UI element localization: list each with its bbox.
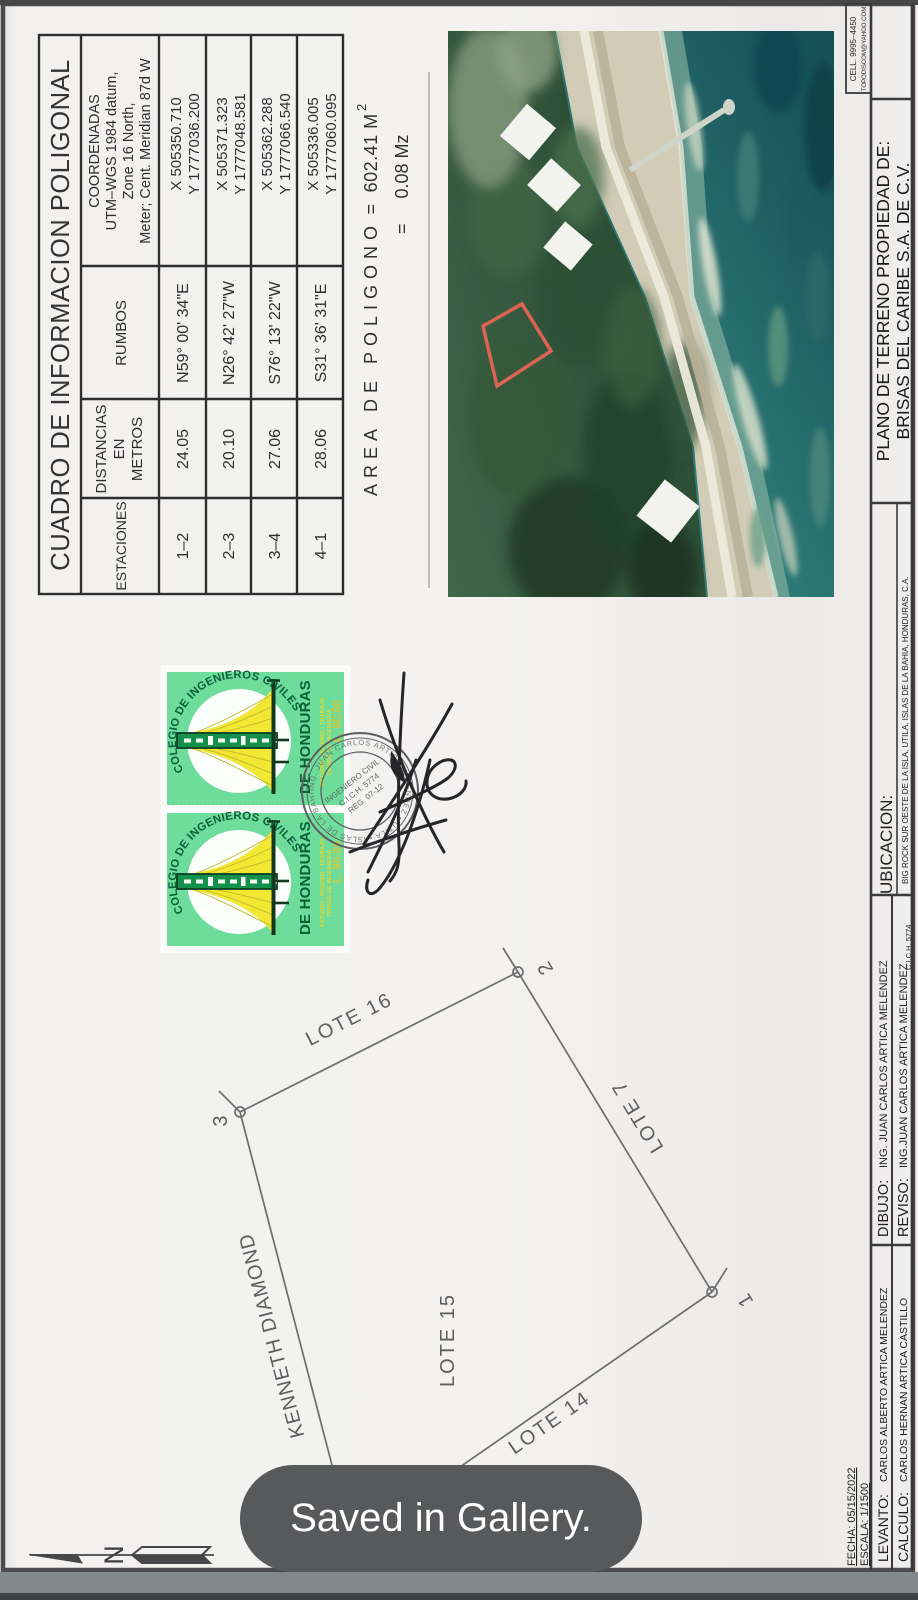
svg-text:2: 2 [354, 104, 369, 111]
svg-text:ESTACIONES: ESTACIONES [113, 501, 129, 590]
svg-text:METROS: METROS [129, 417, 146, 481]
svg-text:Meter; Cent. Meridian 87d: Meter; Cent. Meridian 87d W [138, 58, 154, 244]
svg-text:= 0.08 Mz: = 0.08 Mz [392, 134, 412, 234]
svg-text:CARLOS HERNAN ARTICA CASTILLO: CARLOS HERNAN ARTICA CASTILLO [898, 1298, 910, 1482]
svg-text:28.06: 28.06 [313, 429, 330, 469]
svg-text:ING. JUAN CARLOS ARTICA MELEND: ING. JUAN CARLOS ARTICA MELENDEZ [878, 960, 890, 1168]
svg-text:Y 1777066.540: Y 1777066.540 [277, 93, 294, 195]
svg-text:2–3: 2–3 [221, 533, 238, 560]
svg-text:LOTE 14: LOTE 14 [505, 1387, 595, 1459]
svg-text:S31° 36' 31"E: S31° 36' 31"E [313, 284, 330, 383]
svg-text:3: 3 [210, 1115, 232, 1126]
svg-text:DISTANCIAS: DISTANCIAS [93, 405, 110, 494]
svg-text:24.05: 24.05 [175, 429, 192, 469]
svg-text:EN: EN [111, 439, 128, 460]
svg-text:1: 1 [734, 1290, 759, 1311]
svg-text:27.06: 27.06 [267, 429, 284, 469]
svg-text:1–2: 1–2 [175, 533, 192, 560]
svg-text:LOTE 15: LOTE 15 [437, 1293, 459, 1387]
svg-text:3–4: 3–4 [267, 533, 284, 560]
svg-text:UBICACION:: UBICACION: [877, 795, 896, 894]
svg-text:Y 1777060.095: Y 1777060.095 [323, 93, 340, 195]
svg-text:CARLOS ALBERTO ARTICA MELENDEZ: CARLOS ALBERTO ARTICA MELENDEZ [878, 1287, 890, 1482]
svg-text:CUADRO DE INFORMACION POLIG: CUADRO DE INFORMACION POLIGONAL [47, 59, 75, 570]
svg-text:N: N [99, 1545, 129, 1565]
svg-text:COORDENADAS: COORDENADAS [87, 94, 103, 208]
svg-text:X 505350.710: X 505350.710 [168, 97, 185, 190]
svg-text:C.I.C.H. 5774: C.I.C.H. 5774 [904, 925, 913, 970]
svg-text:BIG ROCK SUR OESTE DE LA ISLA,: BIG ROCK SUR OESTE DE LA ISLA, UTILA, IS… [901, 576, 910, 884]
svg-text:Zone 16 North,: Zone 16 North, [121, 103, 137, 200]
svg-text:2: 2 [534, 958, 559, 979]
svg-text:20.10: 20.10 [221, 429, 238, 469]
svg-text:Y 1777036.200: Y 1777036.200 [186, 93, 203, 195]
svg-text:Y 1777048.581: Y 1777048.581 [232, 93, 249, 195]
svg-text:LOTE 7: LOTE 7 [607, 1076, 668, 1157]
svg-text:LEVANTO:: LEVANTO: [875, 1494, 891, 1562]
svg-text:X 505336.005: X 505336.005 [305, 97, 322, 190]
svg-text:ING.JUAN CARLOS ARTICA MELENDE: ING.JUAN CARLOS ARTICA MELENDEZ [898, 963, 910, 1168]
svg-text:UTM–WGS 1984 datum,: UTM–WGS 1984 datum, [104, 72, 120, 231]
svg-text:ESCALA: 1/1500: ESCALA: 1/1500 [859, 1483, 871, 1566]
svg-text:S76° 13' 22"W: S76° 13' 22"W [267, 281, 284, 385]
svg-text:X 505371.323: X 505371.323 [214, 97, 231, 190]
svg-text:N26° 42' 27"W: N26° 42' 27"W [221, 280, 238, 385]
svg-text:DIBUJO:: DIBUJO: [876, 1180, 892, 1237]
svg-text:X 505362.288: X 505362.288 [259, 97, 276, 190]
svg-text:CALCULO:: CALCULO: [895, 1492, 911, 1562]
svg-text:BRISAS DEL CARIBE S.A. DE C.V.: BRISAS DEL CARIBE S.A. DE C.V. [893, 163, 913, 440]
svg-text:RUMBOS: RUMBOS [113, 300, 130, 366]
svg-text:FECHA: 05/15/2022: FECHA: 05/15/2022 [846, 1468, 858, 1566]
svg-text:N59° 00' 34"E: N59° 00' 34"E [175, 283, 192, 383]
svg-text:A R E A D E P O L I G O N: A R E A D E P O L I G O N O = 602.41 M [361, 113, 381, 496]
svg-text:CELL. 9995–4450: CELL. 9995–4450 [849, 16, 858, 81]
svg-text:REVISO:: REVISO: [896, 1178, 912, 1237]
svg-text:TOPODISCOM@YAHOO.COM: TOPODISCOM@YAHOO.COM [861, 7, 868, 92]
svg-text:PLANO DE TERRENO PROPIEDAD DE:: PLANO DE TERRENO PROPIEDAD DE: [873, 141, 893, 462]
svg-text:4–1: 4–1 [313, 533, 330, 560]
